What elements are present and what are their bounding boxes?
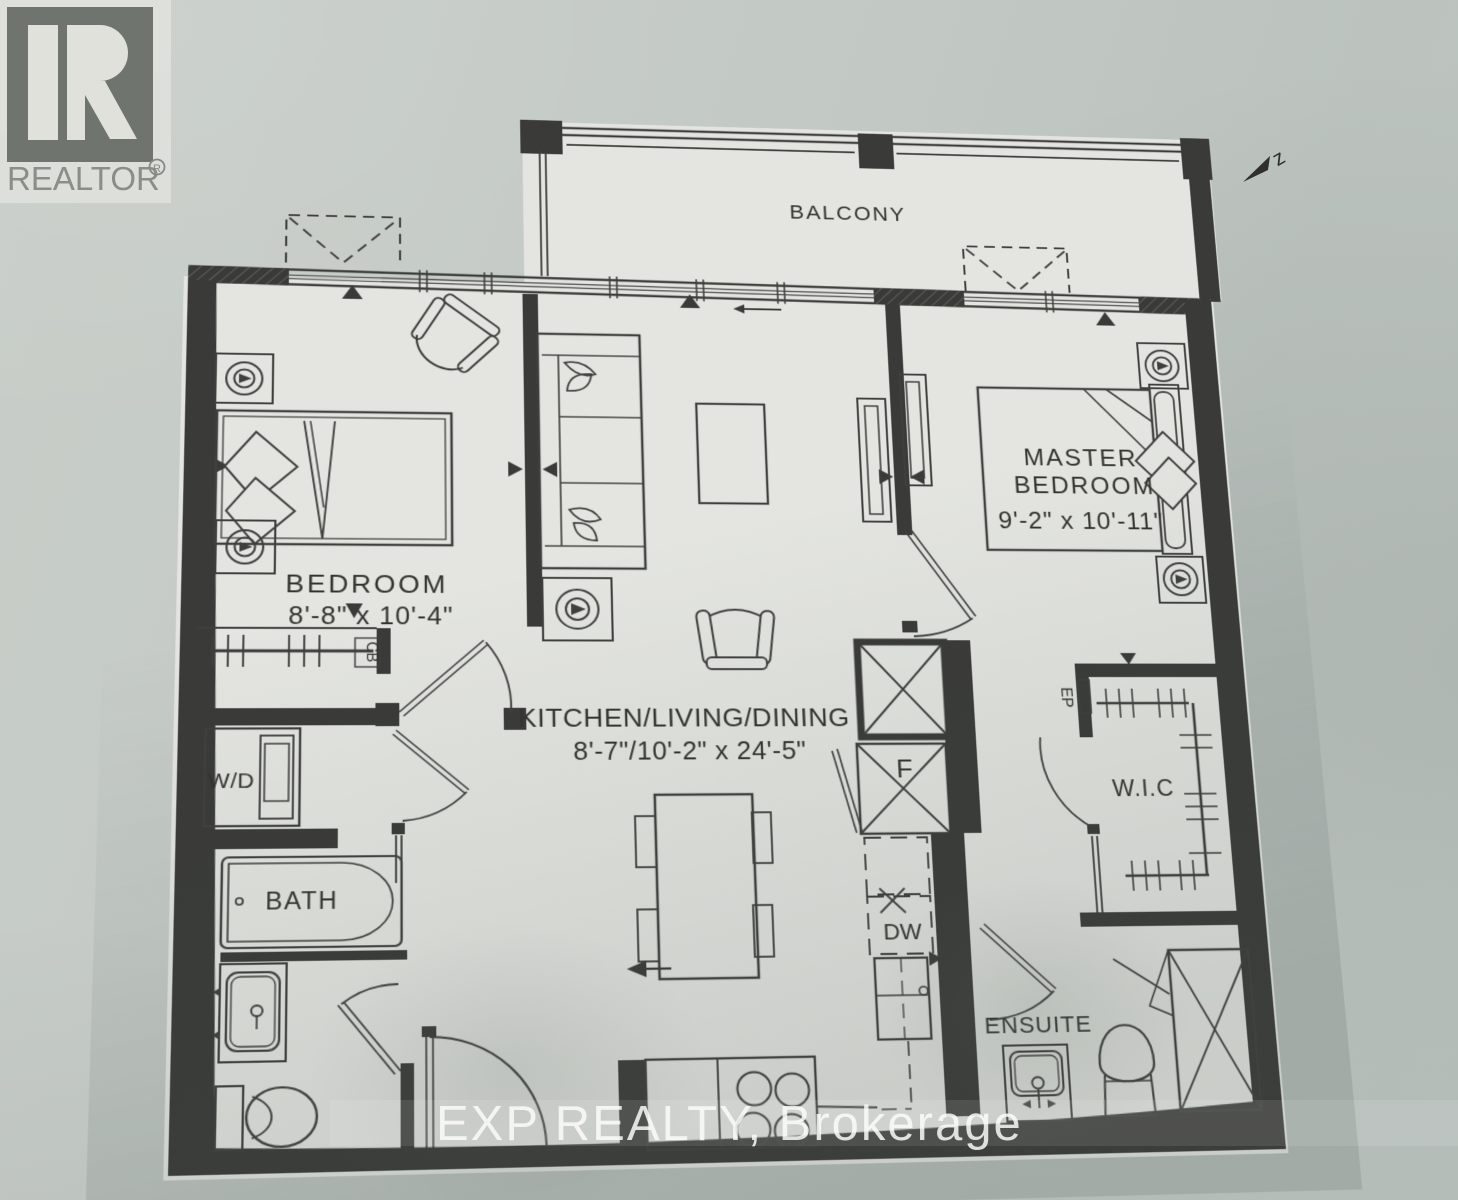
svg-text:REALTOR: REALTOR — [7, 160, 160, 197]
svg-text:R: R — [153, 163, 161, 175]
svg-text:z: z — [1268, 146, 1289, 171]
